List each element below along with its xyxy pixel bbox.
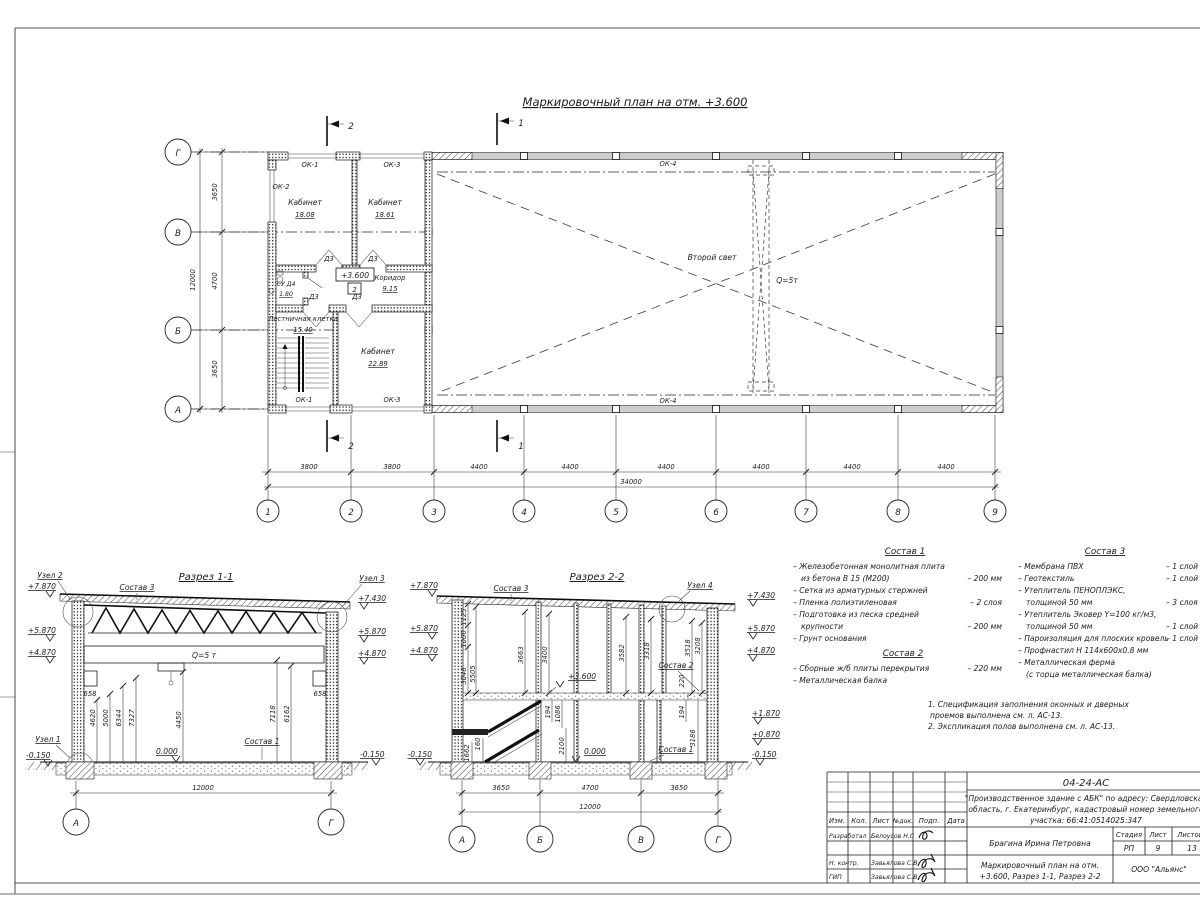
project-line-3: участка: 66:41:0514025:347 xyxy=(1029,816,1142,825)
svg-text:+3.600: +3.600 xyxy=(341,271,369,280)
svg-text:Б: Б xyxy=(175,327,181,337)
svg-text:3208: 3208 xyxy=(694,637,702,655)
svg-text:+0.870: +0.870 xyxy=(752,730,780,739)
role-developer: Разработал xyxy=(829,832,867,840)
comp3-callout-s1: Состав 3 xyxy=(120,583,155,592)
composition-list-2: Состав 2 – Сборные ж/б плиты перекрытия–… xyxy=(793,649,1002,685)
svg-text:9: 9 xyxy=(992,508,998,518)
corbel-dim-right: 658 xyxy=(314,690,328,698)
svg-text:– Мембрана ПВХ: – Мембрана ПВХ xyxy=(1018,562,1084,571)
svg-text:+4.870: +4.870 xyxy=(358,649,386,658)
svg-text:12000: 12000 xyxy=(192,784,214,792)
svg-text:0.000: 0.000 xyxy=(156,747,178,756)
hall-walls xyxy=(425,153,1003,413)
window-ok2-label: ОК-2 xyxy=(273,183,290,191)
svg-text:1000: 1000 xyxy=(460,630,468,647)
svg-text:12000: 12000 xyxy=(579,803,601,811)
sheet-number: 9 xyxy=(1156,844,1161,853)
svg-text:3800: 3800 xyxy=(300,463,317,471)
cut-2-top: 2 xyxy=(348,122,354,132)
svg-text:3800: 3800 xyxy=(383,463,400,471)
project-line-1: "Производственное здание с АБК" по адрес… xyxy=(965,794,1200,803)
svg-text:2: 2 xyxy=(352,286,356,294)
svg-text:– 220 мм: – 220 мм xyxy=(967,664,1002,673)
svg-text:+7.870: +7.870 xyxy=(410,581,438,590)
svg-text:1125: 1125 xyxy=(460,608,468,625)
svg-text:Стадия: Стадия xyxy=(1116,831,1142,839)
svg-text:5505: 5505 xyxy=(469,665,477,682)
room-stair-name: Лестничная клетка xyxy=(267,315,338,323)
svg-text:– 1 слой: – 1 слой xyxy=(1166,562,1198,571)
svg-text:3663: 3663 xyxy=(517,646,525,663)
section1-crane-label: Q=5 т xyxy=(192,651,217,660)
role-gip: ГИП xyxy=(829,874,842,881)
svg-text:+7.870: +7.870 xyxy=(28,582,56,591)
svg-text:– Пароизоляция для плоских кро: – Пароизоляция для плоских кровель xyxy=(1018,634,1169,643)
corbel-dim-left: 658 xyxy=(84,690,98,698)
role-ncontrol: Н. контр. xyxy=(829,860,859,867)
svg-text:– 3 слоя: – 3 слоя xyxy=(1166,598,1198,607)
crane-capacity-label: Q=5т xyxy=(776,276,798,285)
plan-left-dimensions: 3650 4700 3650 12000 Г В Б А xyxy=(165,139,268,422)
svg-text:4: 4 xyxy=(521,508,527,518)
svg-text:Изм.: Изм. xyxy=(829,817,845,825)
svg-text:3650: 3650 xyxy=(492,784,509,792)
svg-text:3048: 3048 xyxy=(460,667,468,685)
room-corridor-area: 9.15 xyxy=(382,285,397,293)
comp3-title: Состав 3 xyxy=(1085,547,1126,557)
svg-text:12000: 12000 xyxy=(189,269,197,291)
svg-text:4400: 4400 xyxy=(937,463,954,471)
svg-text:3518: 3518 xyxy=(684,639,692,657)
comp3-callout-s2: Состав 3 xyxy=(494,584,529,593)
svg-text:– Пленка полиэтиленовая: – Пленка полиэтиленовая xyxy=(793,598,897,607)
svg-text:(с торца металлическая балка): (с торца металлическая балка) xyxy=(1026,670,1152,679)
composition-list-3: Состав 3 – Мембрана ПВХ– 1 слой – Геотек… xyxy=(1018,547,1198,679)
window-ok4-top-label: ОК-4 xyxy=(660,160,677,168)
svg-text:5000: 5000 xyxy=(102,709,110,726)
svg-text:+7.430: +7.430 xyxy=(747,591,775,600)
window-ok4-bottom-label: ОК-4 xyxy=(660,397,677,405)
doc-title-line-1: Маркировочный план на отм. xyxy=(981,861,1099,870)
svg-text:+4.870: +4.870 xyxy=(28,648,56,657)
svg-text:– 200 мм: – 200 мм xyxy=(967,622,1002,631)
svg-text:3650: 3650 xyxy=(211,360,219,377)
svg-text:А: А xyxy=(174,406,181,416)
svg-text:+5.870: +5.870 xyxy=(410,624,438,633)
doc-code: 04-24-АС xyxy=(1063,778,1110,789)
svg-text:3400: 3400 xyxy=(541,646,549,663)
cut-1-bottom: 1 xyxy=(518,442,524,452)
svg-text:6: 6 xyxy=(713,508,719,518)
cut-1-top: 1 xyxy=(518,119,524,129)
svg-text:8: 8 xyxy=(895,508,901,518)
svg-text:– Железобетонная монолитная п: – Железобетонная монолитная плита xyxy=(793,562,945,571)
svg-text:– 1 слой: – 1 слой xyxy=(1166,622,1198,631)
svg-text:34000: 34000 xyxy=(620,478,642,486)
svg-text:– Утеплитель Эковер Y=100 кг/м: – Утеплитель Эковер Y=100 кг/м3, xyxy=(1018,610,1156,619)
plan-title: Маркировочный план на отм. +3.600 xyxy=(523,95,748,109)
svg-text:+1.870: +1.870 xyxy=(752,709,780,718)
svg-text:+5.870: +5.870 xyxy=(28,626,56,635)
svg-text:4400: 4400 xyxy=(752,463,769,471)
svg-text:Лист: Лист xyxy=(1148,831,1167,839)
name-developer: Белоусов Н.С xyxy=(871,833,915,840)
svg-text:– Металлическая ферма: – Металлическая ферма xyxy=(1018,658,1115,667)
svg-text:– Грунт основания: – Грунт основания xyxy=(793,634,867,643)
sheets-total: 13 xyxy=(1187,844,1197,853)
svg-text:– 1 слой: – 1 слой xyxy=(1166,574,1198,583)
svg-text:2100: 2100 xyxy=(558,737,566,754)
section-1-1: Разрез 1-1 Q=5 т 658 658 4620 5000 6344 … xyxy=(26,571,386,835)
room-corridor-name: Коридор xyxy=(375,274,406,282)
svg-text:+5.870: +5.870 xyxy=(747,624,775,633)
svg-text:-0.150: -0.150 xyxy=(26,751,51,760)
svg-text:А: А xyxy=(458,836,465,846)
svg-text:– Сборные ж/б плиты перекрытия: – Сборные ж/б плиты перекрытия xyxy=(793,664,930,673)
svg-text:4700: 4700 xyxy=(211,272,219,289)
section-2-2: Разрез 2-2 Узел 4 Состав 3 Состав 2 Сост… xyxy=(408,572,781,852)
svg-text:Дата: Дата xyxy=(946,817,965,825)
window-ok1-top-label: ОК-1 xyxy=(302,161,319,169)
comp2-callout-s2: Состав 2 xyxy=(659,661,694,670)
room-su-name: СУ Д4 xyxy=(277,281,296,288)
room-su-area: 1.80 xyxy=(279,291,293,298)
node2-label: Узел 2 xyxy=(37,571,63,580)
name-ncontrol: Завьялова С.В xyxy=(871,860,917,867)
svg-text:Подп.: Подп. xyxy=(919,817,940,825)
window-ok1-bottom-label: ОК-1 xyxy=(296,396,313,404)
svg-text:+4.870: +4.870 xyxy=(747,646,775,655)
room-kab1-area: 18.08 xyxy=(295,211,315,219)
notes: 1. Спецификация заполнения оконных и две… xyxy=(928,700,1129,731)
svg-text:3: 3 xyxy=(431,508,437,518)
section2-title: Разрез 2-2 xyxy=(570,572,625,583)
svg-text:– 1 слой: – 1 слой xyxy=(1166,634,1198,643)
svg-text:В: В xyxy=(638,836,644,846)
svg-text:4400: 4400 xyxy=(561,463,578,471)
svg-text:6162: 6162 xyxy=(283,705,291,722)
svg-text:4620: 4620 xyxy=(89,709,97,726)
floor-plan: Маркировочный план на отм. +3.600 Второй… xyxy=(165,95,1006,522)
plan-level-mark: +3.600 2 xyxy=(336,268,374,294)
svg-text:4400: 4400 xyxy=(843,463,860,471)
svg-text:194: 194 xyxy=(678,706,686,719)
svg-text:3318: 3318 xyxy=(643,642,651,660)
name-gip: Завьялова С.В xyxy=(871,874,917,881)
svg-text:– Профнастил Н 114х600х0.8 мм: – Профнастил Н 114х600х0.8 мм xyxy=(1018,646,1149,655)
svg-text:– Утеплитель ПЕНОПЛЭКС,: – Утеплитель ПЕНОПЛЭКС, xyxy=(1018,586,1126,595)
room-kab2-area: 18.61 xyxy=(375,211,394,219)
signature-marks xyxy=(918,831,935,882)
stage-value: РП xyxy=(1124,844,1135,853)
svg-text:толщиной 50 мм: толщиной 50 мм xyxy=(1026,622,1093,631)
svg-text:-0.150: -0.150 xyxy=(408,750,433,759)
svg-text:1662: 1662 xyxy=(463,744,471,761)
svg-text:+3.600: +3.600 xyxy=(568,672,596,681)
svg-text:+7.430: +7.430 xyxy=(358,594,386,603)
svg-text:толщиной 50 мм: толщиной 50 мм xyxy=(1026,598,1093,607)
svg-text:4450: 4450 xyxy=(175,711,183,728)
svg-text:4400: 4400 xyxy=(470,463,487,471)
svg-text:+5.870: +5.870 xyxy=(358,627,386,636)
door-label: Д3 xyxy=(323,255,334,263)
svg-text:5: 5 xyxy=(613,508,619,518)
second-light-label: Второй свет xyxy=(688,253,737,262)
project-line-2: область, г. Екатеринбург, кадастровый но… xyxy=(968,805,1200,814)
author-name: Брагина Ирина Петровна xyxy=(989,839,1091,848)
drawing-canvas: Маркировочный план на отм. +3.600 Второй… xyxy=(0,0,1200,900)
svg-text:– Геотекстиль: – Геотекстиль xyxy=(1018,574,1074,583)
door-label: Д3 xyxy=(367,255,378,263)
room-kab2-name: Кабинет xyxy=(368,198,402,207)
svg-text:– Металлическая балка: – Металлическая балка xyxy=(793,676,887,685)
node1-label: Узел 1 xyxy=(35,735,60,744)
company-name: ООО "Альянс" xyxy=(1131,865,1187,874)
door-label: Д3 xyxy=(308,293,319,301)
hall-open-space xyxy=(437,160,995,393)
svg-text:Листов: Листов xyxy=(1176,831,1200,839)
svg-text:3582: 3582 xyxy=(618,644,626,661)
svg-text:4700: 4700 xyxy=(581,784,598,792)
svg-text:Б: Б xyxy=(537,836,543,846)
room-kab3-name: Кабинет xyxy=(361,347,395,356)
svg-text:4400: 4400 xyxy=(657,463,674,471)
room-stair-area: 15.40 xyxy=(293,326,312,334)
svg-text:+4.870: +4.870 xyxy=(410,646,438,655)
svg-text:1086: 1086 xyxy=(554,705,562,723)
note-line-1: 1. Спецификация заполнения оконных и две… xyxy=(928,700,1129,709)
svg-text:– Подготовка из песка средней: – Подготовка из песка средней xyxy=(793,610,919,619)
svg-text:А: А xyxy=(72,819,79,829)
window-ok3-top-label: ОК-3 xyxy=(384,161,401,169)
blueprint-sheet: Маркировочный план на отм. +3.600 Второй… xyxy=(0,0,1200,900)
svg-text:-0.150: -0.150 xyxy=(360,750,385,759)
svg-text:– Сетка из арматурных стержней: – Сетка из арматурных стержней xyxy=(793,586,928,595)
node4-label: Узел 4 xyxy=(687,581,713,590)
svg-text:В: В xyxy=(175,229,181,239)
svg-text:7: 7 xyxy=(803,508,809,518)
svg-text:6344: 6344 xyxy=(115,709,123,726)
svg-text:0.000: 0.000 xyxy=(584,747,606,756)
svg-text:– 200 мм: – 200 мм xyxy=(967,574,1002,583)
svg-text:крупности: крупности xyxy=(801,622,843,631)
plan-bottom-dimensions: 3800 3800 4400 4400 4400 4400 4400 4400 … xyxy=(257,415,1006,522)
window-ok3-bottom-label: ОК-3 xyxy=(384,396,401,404)
svg-text:3650: 3650 xyxy=(211,183,219,200)
section1-bottom-axes: 12000 А Г xyxy=(63,781,344,835)
room-kab1-name: Кабинет xyxy=(288,198,322,207)
svg-text:-0.150: -0.150 xyxy=(752,750,777,759)
svg-text:№док.: №док. xyxy=(892,818,913,825)
svg-text:2: 2 xyxy=(348,508,354,518)
room-kab3-area: 22.89 xyxy=(368,360,387,368)
doc-title-line-2: +3.600, Разрез 1-1, Разрез 2-2 xyxy=(980,872,1101,881)
composition-list-1: Состав 1 – Железобетонная монолитная пли… xyxy=(793,547,1002,643)
comp1-callout-s1: Состав 1 xyxy=(245,737,280,746)
comp2-title: Состав 2 xyxy=(883,649,924,659)
note-line-3: 2. Экспликация полов выполнена см. л. АС… xyxy=(928,722,1115,731)
section2-bottom-axes: 3650 4700 3650 12000 А Б В Г xyxy=(449,780,731,852)
svg-text:3186: 3186 xyxy=(689,729,697,747)
svg-text:194: 194 xyxy=(544,706,552,719)
svg-text:Кол.: Кол. xyxy=(851,817,867,825)
svg-text:7118: 7118 xyxy=(269,705,277,723)
svg-text:160: 160 xyxy=(474,738,482,751)
comp1-title: Состав 1 xyxy=(885,547,925,557)
svg-text:– 2 слоя: – 2 слоя xyxy=(970,598,1002,607)
svg-text:из бетона В 15 (М200): из бетона В 15 (М200) xyxy=(801,574,890,583)
svg-text:3650: 3650 xyxy=(670,784,687,792)
svg-text:7327: 7327 xyxy=(128,709,136,727)
node3-label: Узел 3 xyxy=(359,574,385,583)
note-line-2: проемов выполнена см. л. АС-13. xyxy=(930,711,1063,720)
column-markers xyxy=(425,153,1003,413)
svg-text:Лист: Лист xyxy=(871,817,890,825)
svg-text:1: 1 xyxy=(265,508,271,518)
section1-title: Разрез 1-1 xyxy=(179,572,234,583)
title-block: 04-24-АС "Производственное здание с АБК"… xyxy=(827,772,1200,883)
svg-text:220: 220 xyxy=(678,675,686,688)
stairs-plan xyxy=(277,336,329,392)
